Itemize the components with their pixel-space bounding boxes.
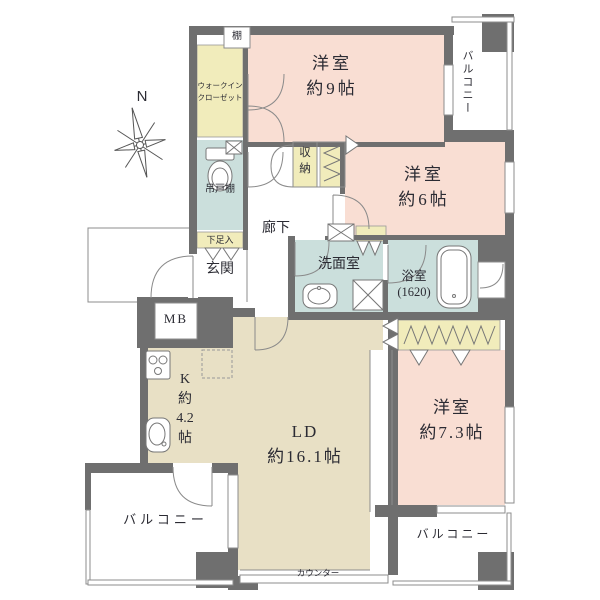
kitchen-balcony-door-arc — [173, 467, 212, 506]
balcony-top-right-label: バルコニー — [456, 34, 474, 130]
bathroom-label: 浴室 (1620) — [383, 268, 445, 301]
living-floor-ext — [370, 317, 383, 350]
kitchen-label: K 約 4.2 帖 — [167, 370, 203, 448]
floorplan-image: N 洋室 約9帖 洋室 約6帖 洋室 約7.3帖 LD 約16.1帖 K 約 4… — [0, 0, 600, 600]
washing-machine-icon — [353, 280, 383, 310]
shoe-cabinet-label: 下足入 — [197, 234, 243, 247]
counter-label: カウンター — [280, 567, 356, 579]
balcony-bottom-left-label: バルコニー — [108, 511, 223, 530]
meter-box-label: MB — [156, 310, 196, 329]
compass-north-label: N — [131, 86, 153, 108]
washroom-label: 洗面室 — [297, 255, 381, 275]
shoe-cabinet-door-icon — [223, 248, 239, 260]
entrance-label: 玄関 — [196, 260, 244, 280]
living-dining-label: LD 約16.1帖 — [240, 420, 370, 469]
bedroom73-label: 洋室 約7.3帖 — [392, 396, 512, 445]
toilet-door-arc — [248, 152, 283, 187]
bedroom9-label: 洋室 約9帖 — [272, 52, 392, 101]
hall-closet-door-arcs — [271, 145, 293, 187]
storage-x-icon — [328, 224, 354, 241]
walk-in-closet-label: ウォークイン クローゼット — [197, 80, 243, 104]
hall-closet-label: 収納 — [294, 146, 316, 177]
hanging-cupboard-label: 吊戸棚 — [198, 183, 242, 198]
balcony-bottom-right-label: バルコニー — [404, 526, 504, 543]
service-niche — [478, 262, 505, 298]
hallway-label: 廊下 — [244, 219, 308, 239]
entrance-alcove-outline — [88, 228, 189, 302]
washbasin-icon — [303, 284, 337, 308]
shoe-cabinet-door-icon — [205, 248, 221, 260]
entrance-door-arc — [151, 256, 193, 298]
shelf-label: 棚 — [225, 30, 249, 45]
storage-x-icon — [226, 141, 242, 154]
bedroom6-label: 洋室 約6帖 — [364, 163, 484, 212]
compass-icon — [107, 102, 173, 182]
